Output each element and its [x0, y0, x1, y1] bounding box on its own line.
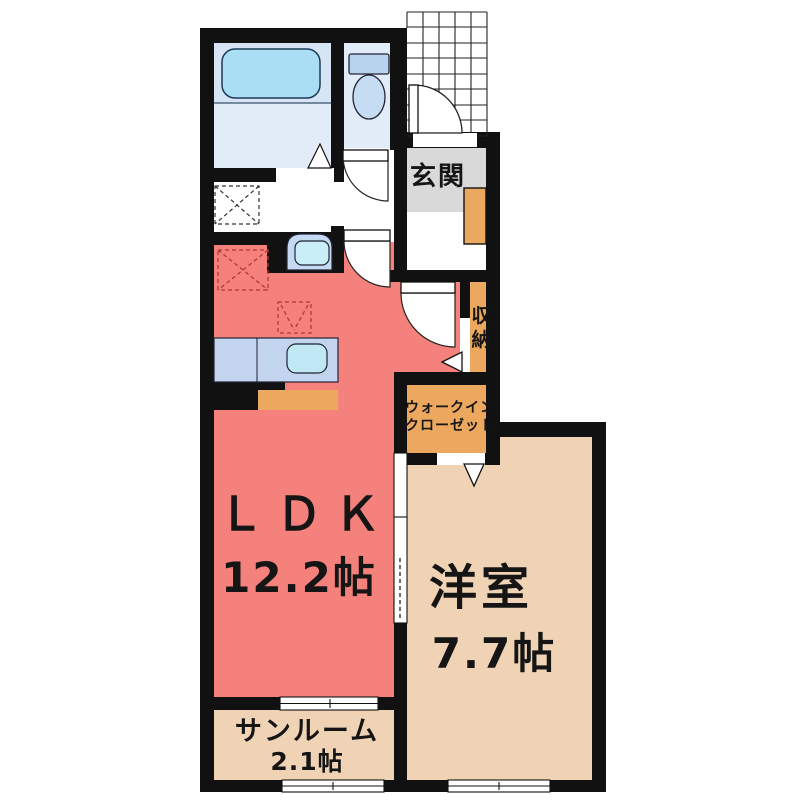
label-western: 洋室 [429, 560, 533, 616]
window-ldk-sunroom [280, 697, 378, 710]
kitchen-sink [287, 344, 327, 373]
label-ldk-size: 12.2帖 [221, 553, 377, 602]
label-closet-line1: ウォークイン [405, 400, 495, 416]
label-western-size: 7.7帖 [432, 629, 556, 678]
sliding-door [394, 453, 407, 623]
window-western-south [448, 780, 550, 792]
shoe-cabinet [464, 188, 486, 244]
floor-plan: ＬＤＫ 12.2帖 洋室 7.7帖 サンルーム 2.1帖 玄関 収納 ウォークイ… [0, 0, 800, 800]
label-closet-line2: クローゼット [405, 417, 495, 434]
kitchen-cabinet [258, 390, 338, 410]
label-ldk: ＬＤＫ [218, 487, 392, 541]
toilet [349, 54, 389, 119]
room-storage [470, 282, 486, 372]
window-sunroom-south [282, 780, 384, 792]
floor-plan-page: ＬＤＫ 12.2帖 洋室 7.7帖 サンルーム 2.1帖 玄関 収納 ウォークイ… [0, 0, 800, 800]
wash-basin [287, 234, 332, 270]
label-sunroom: サンルーム [235, 716, 379, 747]
label-sunroom-size: 2.1帖 [270, 747, 343, 776]
bathtub [222, 49, 320, 98]
label-entrance: 玄関 [410, 161, 466, 192]
